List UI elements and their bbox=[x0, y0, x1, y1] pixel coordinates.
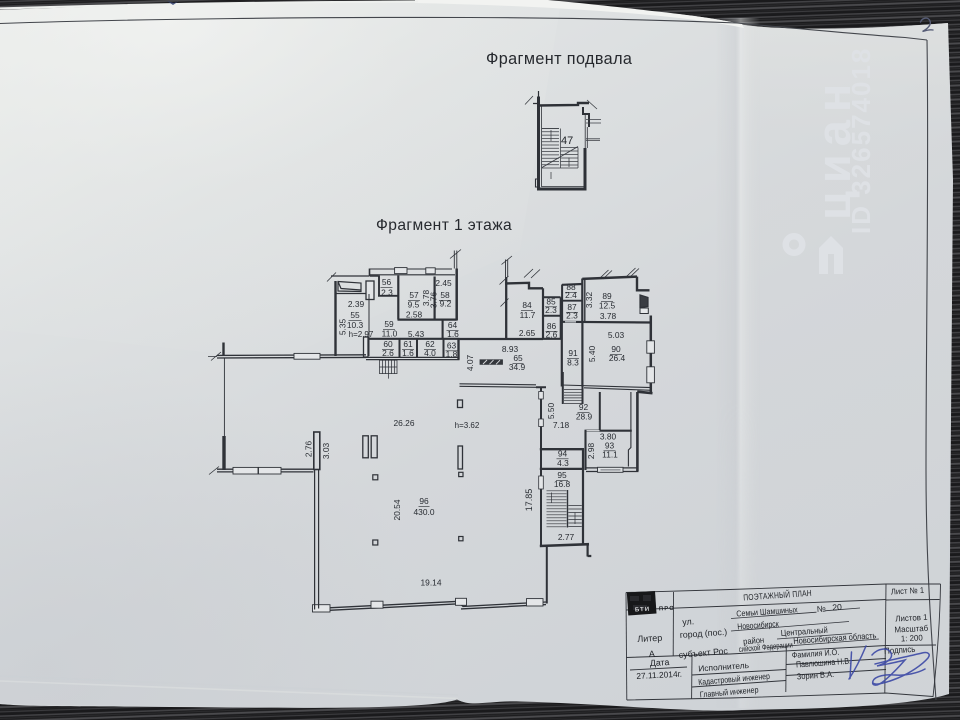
svg-text:2.98: 2.98 bbox=[586, 443, 596, 460]
svg-text:17.85: 17.85 bbox=[524, 489, 534, 512]
svg-text:8.3: 8.3 bbox=[567, 358, 579, 368]
svg-text:Листов 1: Листов 1 bbox=[895, 613, 928, 624]
svg-text:5.40: 5.40 bbox=[587, 346, 597, 363]
svg-text:2.76: 2.76 bbox=[304, 441, 314, 458]
svg-text:3.76: 3.76 bbox=[429, 292, 439, 309]
svg-text:Лист № 1: Лист № 1 bbox=[891, 585, 925, 596]
svg-text:5.50: 5.50 bbox=[546, 403, 556, 420]
svg-text:9.5: 9.5 bbox=[408, 300, 420, 310]
svg-text:2.58: 2.58 bbox=[406, 310, 423, 320]
svg-text:2.45: 2.45 bbox=[435, 278, 452, 288]
svg-text:ул.: ул. bbox=[682, 616, 694, 627]
svg-text:3.03: 3.03 bbox=[321, 443, 331, 460]
svg-text:20: 20 bbox=[832, 602, 842, 613]
svg-text:10.3: 10.3 bbox=[347, 320, 364, 330]
svg-text:5.35: 5.35 bbox=[338, 319, 348, 336]
svg-text:11.7: 11.7 bbox=[520, 310, 536, 320]
svg-text:57: 57 bbox=[409, 290, 419, 300]
svg-text:89: 89 bbox=[602, 291, 612, 301]
svg-text:5.03: 5.03 bbox=[608, 330, 625, 340]
svg-text:2.39: 2.39 bbox=[348, 299, 365, 309]
svg-text:84: 84 bbox=[522, 300, 532, 310]
svg-text:h=3.62: h=3.62 bbox=[455, 421, 480, 430]
svg-text:БТИ: БТИ bbox=[635, 607, 650, 614]
svg-text:55: 55 bbox=[350, 310, 360, 320]
svg-text:56: 56 bbox=[382, 277, 392, 287]
svg-text:Дата: Дата bbox=[650, 657, 670, 668]
svg-text:3.78: 3.78 bbox=[600, 311, 617, 321]
svg-text:12.5: 12.5 bbox=[599, 301, 616, 311]
svg-text:1: 200: 1: 200 bbox=[901, 633, 924, 643]
svg-text:430.0: 430.0 bbox=[414, 507, 435, 517]
svg-text:2.4: 2.4 bbox=[565, 290, 577, 300]
svg-text:ID 326574018: ID 326574018 bbox=[846, 47, 876, 234]
svg-text:47: 47 bbox=[561, 135, 573, 147]
svg-text:3.32: 3.32 bbox=[584, 292, 594, 309]
svg-text:96: 96 bbox=[419, 496, 429, 506]
svg-text:26.26: 26.26 bbox=[394, 418, 415, 428]
svg-text:Литер: Литер bbox=[637, 633, 662, 644]
svg-text:4.07: 4.07 bbox=[465, 355, 475, 372]
svg-text:2.3: 2.3 bbox=[381, 288, 393, 298]
svg-text:2.65: 2.65 bbox=[519, 328, 536, 338]
svg-text:92: 92 bbox=[579, 402, 589, 412]
svg-text:20.54: 20.54 bbox=[392, 499, 402, 520]
svg-text:91: 91 bbox=[568, 348, 578, 358]
svg-text:4.3: 4.3 bbox=[557, 458, 569, 468]
svg-text:19.14: 19.14 bbox=[421, 578, 442, 588]
svg-text:5.43: 5.43 bbox=[408, 329, 425, 339]
svg-text:Фрагмент подвала: Фрагмент подвала bbox=[486, 50, 632, 68]
svg-text:ПРО: ПРО bbox=[659, 606, 675, 613]
svg-text:7.18: 7.18 bbox=[553, 420, 570, 430]
svg-text:h=2.97: h=2.97 bbox=[349, 330, 374, 339]
svg-text:№: № bbox=[816, 603, 826, 614]
svg-text:94: 94 bbox=[558, 449, 568, 459]
svg-text:2.77: 2.77 bbox=[558, 532, 575, 542]
svg-text:59: 59 bbox=[384, 319, 394, 329]
svg-text:Фрагмент 1 этажа: Фрагмент 1 этажа bbox=[376, 217, 512, 234]
svg-text:11.0: 11.0 bbox=[382, 329, 398, 339]
svg-text:28.9: 28.9 bbox=[576, 412, 593, 422]
